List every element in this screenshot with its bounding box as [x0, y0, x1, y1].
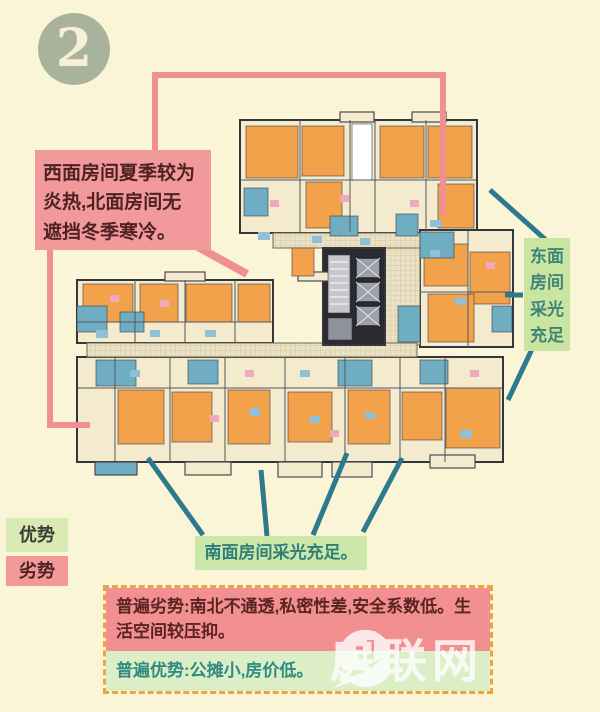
furniture	[455, 298, 466, 305]
furniture	[130, 370, 140, 377]
furniture	[360, 238, 370, 245]
furniture	[150, 330, 160, 337]
balcony	[278, 462, 322, 477]
room	[228, 390, 270, 444]
furniture	[410, 200, 419, 207]
room	[244, 188, 268, 216]
room	[428, 126, 472, 178]
summary-advantage: 普遍优势:公摊小,房价低。	[106, 651, 490, 691]
legend-disadvantage: 劣势	[6, 556, 68, 586]
furniture	[250, 408, 260, 416]
furniture	[340, 195, 349, 202]
furniture	[110, 295, 119, 302]
balcony	[430, 455, 475, 468]
furniture	[365, 412, 375, 419]
room	[402, 392, 442, 440]
room	[186, 284, 232, 322]
furniture	[486, 262, 495, 269]
furniture	[430, 250, 440, 257]
summary-disadvantage: 普遍劣势:南北不通透,私密性差,安全系数低。生活空间较压抑。	[106, 588, 490, 651]
furniture	[160, 300, 169, 307]
furniture	[310, 416, 320, 423]
room	[352, 124, 372, 180]
room	[302, 126, 344, 176]
furniture	[300, 370, 310, 377]
furniture	[96, 330, 108, 338]
balcony	[95, 462, 137, 475]
room	[470, 252, 510, 304]
furniture	[430, 220, 442, 227]
furniture	[258, 232, 270, 240]
room	[118, 390, 164, 444]
room	[380, 126, 424, 178]
room	[238, 284, 270, 322]
west-north-note: 西面房间夏季较为 炎热,北面房间无 遮挡冬季寒冷。	[35, 150, 211, 250]
balcony	[185, 462, 231, 475]
room	[396, 214, 418, 236]
step-number: 2	[56, 23, 92, 75]
step-badge: 2	[38, 13, 110, 85]
room	[446, 388, 500, 448]
room	[398, 306, 420, 342]
room	[420, 360, 448, 384]
furniture	[210, 415, 219, 422]
furniture	[270, 200, 279, 207]
balcony	[165, 272, 205, 281]
room	[172, 392, 212, 442]
room	[492, 306, 512, 332]
room	[338, 360, 372, 386]
room	[140, 284, 178, 322]
east-note: 东面 房间 采光 充足	[524, 238, 570, 351]
advantage-connector-line	[508, 347, 533, 400]
core-floor	[328, 318, 352, 340]
legend-advantage: 优势	[6, 518, 68, 552]
room	[292, 248, 314, 276]
furniture	[245, 370, 254, 377]
balcony	[340, 112, 374, 122]
room	[77, 306, 107, 332]
room	[188, 360, 218, 384]
room	[246, 126, 298, 178]
furniture	[460, 430, 472, 438]
advantage-connector-line	[261, 470, 267, 536]
furniture	[330, 430, 339, 437]
summary-box: 普遍劣势:南北不通透,私密性差,安全系数低。生活空间较压抑。 普遍优势:公摊小,…	[103, 585, 493, 694]
room	[428, 294, 474, 342]
furniture	[312, 236, 322, 243]
south-note: 南面房间采光充足。	[195, 536, 367, 570]
disadvantage-pointer-line	[198, 247, 247, 274]
infographic-canvas: 2 西面房间夏季较为 炎热,北面房间无 遮挡冬季寒冷。 东面 房间 采光 充足 …	[0, 0, 600, 712]
furniture	[470, 370, 479, 377]
room	[330, 216, 358, 236]
furniture	[205, 330, 216, 337]
